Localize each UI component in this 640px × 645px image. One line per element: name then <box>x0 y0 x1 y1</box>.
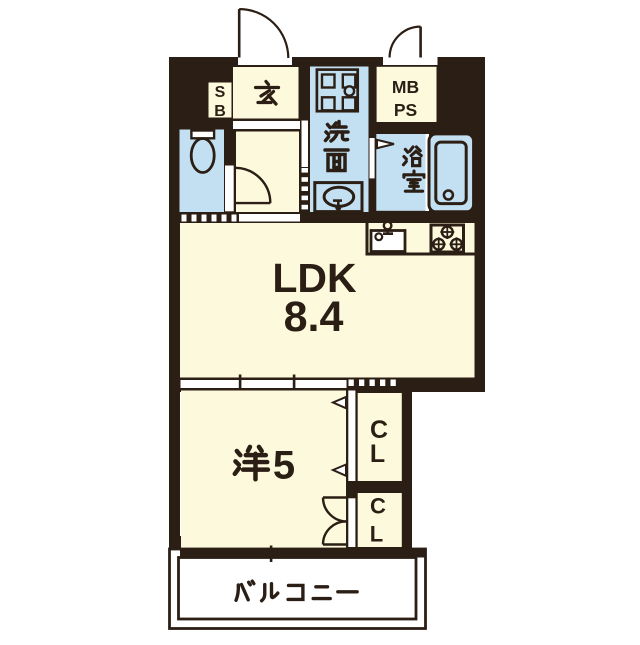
svg-text:MB: MB <box>392 77 419 97</box>
svg-text:C: C <box>370 494 386 519</box>
svg-text:L: L <box>370 522 383 547</box>
svg-text:8.4: 8.4 <box>284 293 344 341</box>
svg-text:B: B <box>214 103 226 120</box>
svg-text:L: L <box>370 440 385 468</box>
svg-text:5: 5 <box>273 444 295 488</box>
svg-text:S: S <box>215 84 226 101</box>
svg-text:PS: PS <box>394 100 417 120</box>
